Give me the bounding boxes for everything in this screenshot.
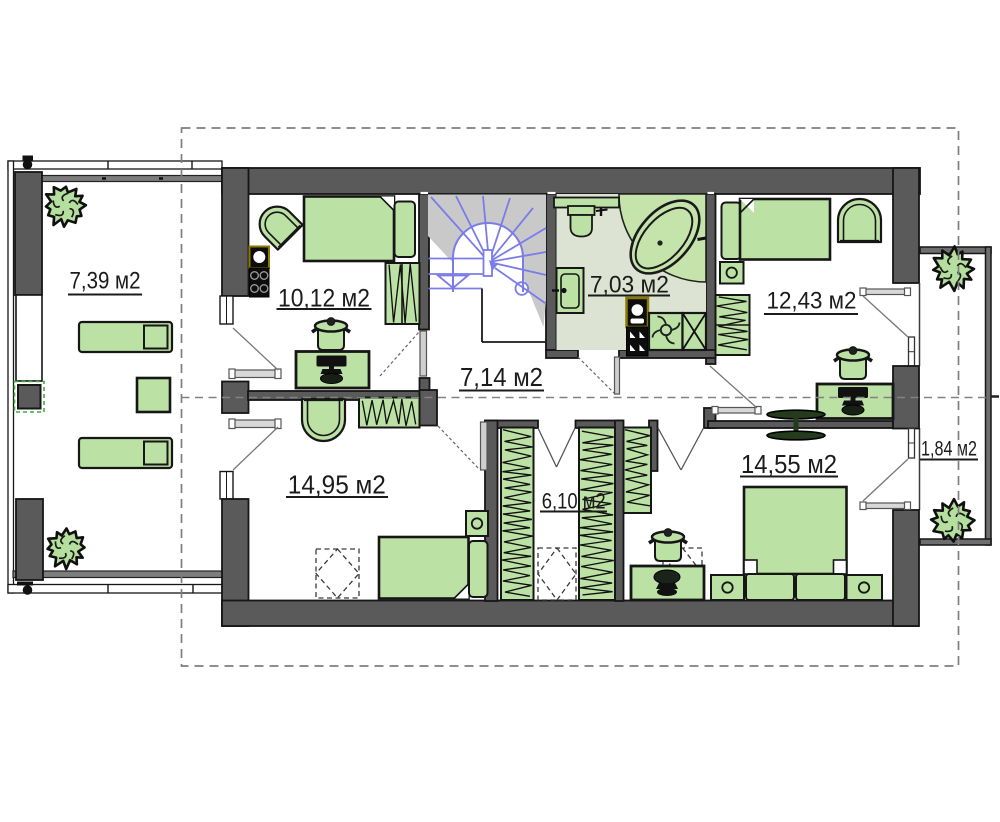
svg-text:14,55 м2: 14,55 м2	[741, 451, 837, 479]
svg-text:1,84 м2: 1,84 м2	[921, 438, 977, 461]
svg-text:14,95 м2: 14,95 м2	[288, 470, 386, 500]
svg-text:7,03 м2: 7,03 м2	[590, 272, 669, 299]
svg-text:12,43 м2: 12,43 м2	[767, 288, 857, 315]
svg-text:7,14 м2: 7,14 м2	[460, 362, 543, 392]
svg-text:6,10 м2: 6,10 м2	[542, 489, 606, 514]
svg-text:7,39 м2: 7,39 м2	[70, 268, 141, 295]
